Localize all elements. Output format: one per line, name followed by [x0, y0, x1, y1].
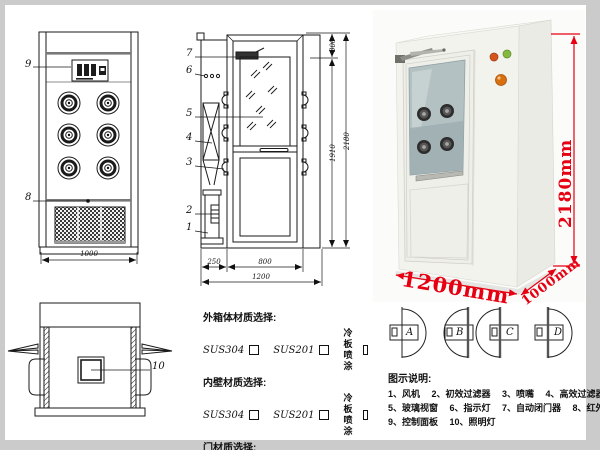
option-label: SUS201: [273, 345, 314, 356]
door-type-label-c: C: [506, 328, 514, 338]
option-label: SUS201: [273, 410, 314, 421]
legend-line: 1、风机 2、初效过滤器 3、喷嘴 4、高效过滤器: [388, 387, 593, 401]
material-section-title: 内壁材质选择:: [203, 378, 368, 390]
side-dim-300: 300: [330, 39, 337, 52]
callout-9: 9: [25, 60, 31, 70]
checkbox[interactable]: [319, 410, 329, 420]
checkbox[interactable]: [363, 410, 368, 420]
side-dim-1200: 1200: [252, 274, 270, 281]
option-label: SUS304: [203, 410, 244, 421]
callout-3: 3: [186, 158, 192, 168]
callout-6: 6: [186, 66, 192, 76]
door-type-label-d: D: [554, 328, 562, 338]
door-type-label-b: B: [456, 328, 463, 338]
callout-1: 1: [186, 223, 192, 233]
door-type-label-a: A: [406, 328, 413, 338]
material-options-row: SUS304 SUS201 冷板喷涂: [203, 393, 368, 437]
spec-sheet-page: 9 8 1000 7 6 5 4 3 2 1 300 1910 2180 250…: [0, 0, 600, 450]
side-dim-250: 250: [207, 259, 220, 266]
checkbox[interactable]: [319, 345, 329, 355]
callout-2: 2: [186, 206, 192, 216]
option-label: SUS304: [203, 345, 244, 356]
checkbox[interactable]: [249, 345, 259, 355]
side-dim-1910: 1910: [330, 144, 337, 162]
callout-7: 7: [186, 49, 192, 59]
material-section-title: 外箱体材质选择:: [203, 313, 368, 325]
callout-4: 4: [186, 133, 192, 143]
legend-title: 图示说明:: [388, 373, 593, 386]
checkbox[interactable]: [249, 410, 259, 420]
front-dim-1000: 1000: [80, 251, 98, 258]
callout-10: 10: [152, 362, 165, 372]
material-selection: 外箱体材质选择: SUS304 SUS201 冷板喷涂 内壁材质选择: SUS3…: [203, 313, 368, 450]
callout-5: 5: [186, 109, 192, 119]
side-dim-2180: 2180: [344, 132, 351, 150]
option-label: 冷板喷涂: [343, 393, 357, 437]
material-options-row: SUS304 SUS201 冷板喷涂: [203, 328, 368, 372]
legend: 图示说明: 1、风机 2、初效过滤器 3、喷嘴 4、高效过滤器 5、玻璃视窗 6…: [388, 373, 593, 429]
legend-line: 9、控制面板 10、照明灯: [388, 415, 593, 429]
checkbox[interactable]: [363, 345, 368, 355]
side-dim-800: 800: [258, 259, 271, 266]
photo-height-label: 2180mm: [556, 139, 576, 228]
material-section-title: 门材质选择:: [203, 443, 368, 450]
callout-8: 8: [25, 193, 31, 203]
legend-line: 5、玻璃视窗 6、指示灯 7、自动闭门器 8、红外线感应器: [388, 401, 593, 415]
option-label: 冷板喷涂: [343, 328, 357, 372]
